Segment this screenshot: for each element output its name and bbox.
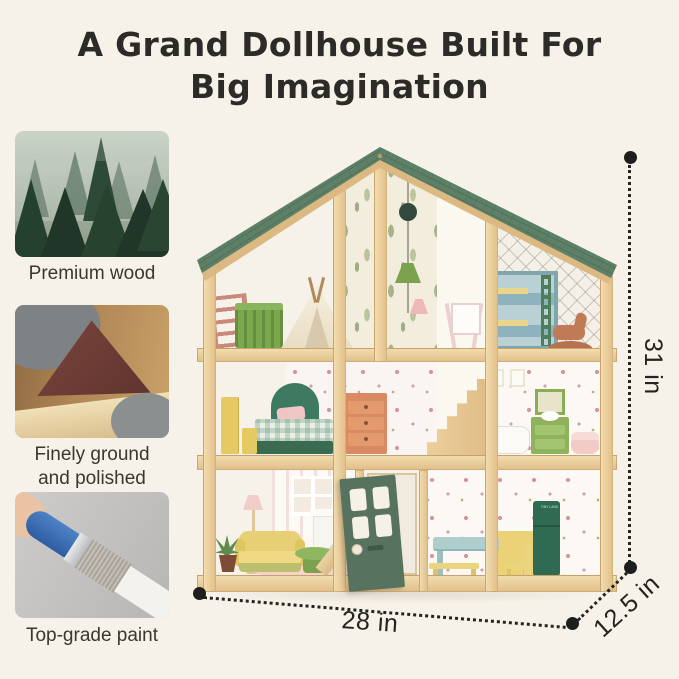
middle-floor — [197, 455, 617, 470]
door-handle-slot — [367, 545, 383, 551]
window-small — [510, 369, 525, 387]
pink-washtub — [571, 432, 599, 454]
paint-photo — [15, 492, 169, 618]
post-left — [203, 267, 216, 592]
door-post-right — [419, 470, 428, 592]
bed-frame — [255, 441, 333, 454]
base-floor — [197, 575, 617, 592]
roof — [197, 145, 617, 290]
product-infographic: A Grand Dollhouse Built For Big Imaginat… — [0, 0, 679, 679]
feature-caption-finely-ground: Finely ground and polished — [0, 443, 184, 491]
forest-illustration — [15, 131, 169, 257]
attic-floor — [197, 348, 617, 362]
door-knob — [351, 544, 363, 556]
wardrobe — [221, 397, 239, 454]
dollhouse-illustration: TINY LAND — [197, 145, 617, 605]
rocking-horse — [553, 325, 585, 340]
title-line-1: A Grand Dollhouse Built For — [0, 24, 679, 66]
roof-slope-right — [380, 147, 617, 278]
post-right — [600, 267, 613, 592]
dimension-endpoint-dot — [624, 151, 637, 164]
feature-caption-top-grade-paint: Top-grade paint — [0, 624, 184, 648]
vanity-cabinet — [531, 417, 569, 454]
floor-lamp — [243, 495, 263, 510]
title-line-2: Big Imagination — [0, 66, 679, 108]
refrigerator: TINY LAND — [533, 501, 560, 576]
dimension-endpoint-dot — [566, 617, 579, 630]
page-title: A Grand Dollhouse Built For Big Imaginat… — [0, 24, 679, 108]
door-pane — [375, 514, 393, 537]
dimension-endpoint-dot — [193, 587, 206, 600]
fridge-brand-label: TINY LAND — [541, 505, 552, 509]
bench — [429, 563, 479, 569]
height-dimension-label: 31 in — [638, 338, 667, 418]
width-dimension-label: 28 in — [289, 602, 451, 642]
height-dimension-line — [628, 165, 631, 563]
plant-pot — [219, 555, 237, 572]
bed-blanket — [255, 419, 333, 443]
toy-shelf — [235, 303, 283, 348]
door-pane — [352, 516, 370, 539]
door-pane — [349, 488, 367, 511]
dimension-endpoint-dot — [624, 561, 637, 574]
paintbrush — [15, 492, 169, 618]
stool — [242, 428, 257, 454]
premium-wood-photo — [15, 131, 169, 257]
roof-peg — [378, 154, 382, 158]
sanding-photo — [15, 305, 169, 438]
dresser — [345, 393, 387, 454]
easel — [451, 303, 481, 335]
front-door — [339, 474, 405, 591]
feature-caption-premium-wood: Premium wood — [0, 262, 184, 286]
door-pane — [372, 486, 390, 509]
roof-slope-left — [197, 147, 380, 273]
wash-basin — [541, 411, 559, 421]
